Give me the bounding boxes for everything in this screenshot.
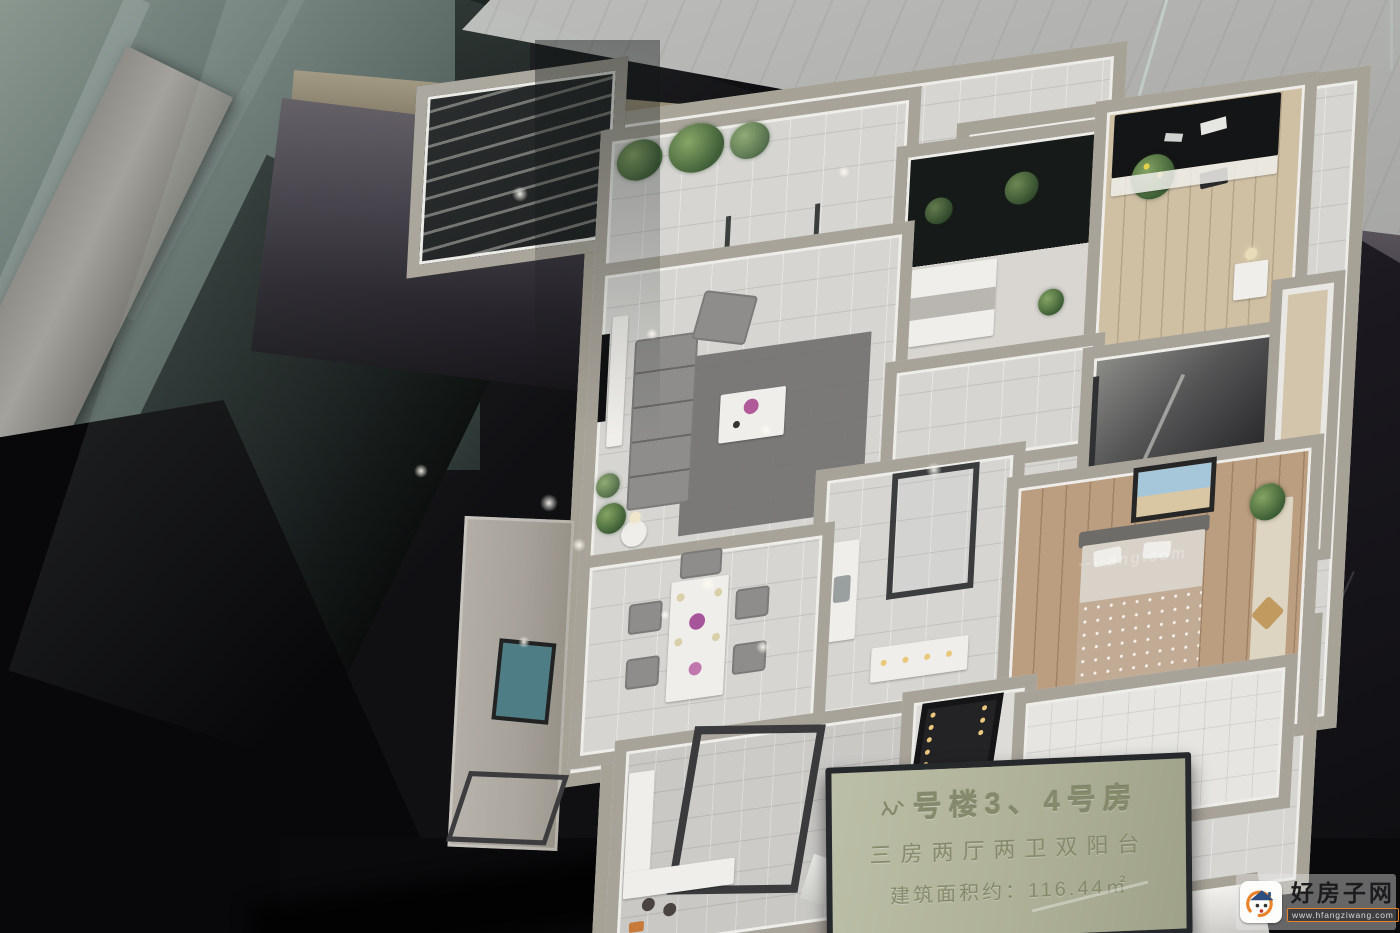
table-lamp — [1245, 247, 1258, 261]
cabinet-lights — [881, 659, 887, 666]
glass-case-edge — [1390, 0, 1393, 70]
light-flare — [926, 462, 942, 478]
mirror-led-dots — [930, 712, 936, 718]
light-flare — [540, 494, 558, 512]
desk-papers — [1164, 133, 1183, 142]
plaque-line-layout: 三房两厅两卫双阳台 — [832, 824, 1186, 871]
light-flare — [518, 636, 530, 648]
cooking-pots — [642, 897, 656, 912]
plant-pot — [1037, 287, 1064, 317]
nightstand — [1233, 259, 1269, 300]
light-flare — [760, 424, 772, 436]
bath-cabinet — [870, 635, 969, 683]
shower-glass-door — [886, 462, 980, 600]
scratched-character-mark — [878, 794, 912, 819]
light-flare — [572, 538, 586, 552]
reflection-shadow-band — [535, 40, 660, 480]
window-greenery — [1004, 169, 1039, 206]
site-watermark: 好房子网 www.hfangziwang.com — [1236, 874, 1396, 930]
model-info-plaque: 号楼3、4号房 三房两厅两卫双阳台 建筑面积约：116.44㎡ — [825, 752, 1192, 933]
light-flare — [700, 576, 716, 592]
watermark-site-name: 好房子网 — [1291, 882, 1395, 906]
light-flare — [838, 166, 850, 178]
watermark-text-block: 好房子网 www.hfangziwang.com — [1287, 882, 1399, 922]
plaque-line-area: 建筑面积约：116.44㎡ — [832, 867, 1186, 911]
light-flare — [512, 186, 528, 202]
orange-utensil — [629, 921, 644, 933]
light-flare — [756, 640, 770, 654]
light-flare — [646, 328, 658, 340]
side-cabinet — [1249, 496, 1294, 676]
photo-scene: ----ang.com 号楼3、4号房 三房两厅两卫双阳台 建筑面积约：116.… — [0, 0, 1400, 933]
watermark-site-url: www.hfangziwang.com — [1287, 908, 1399, 922]
light-flare — [414, 464, 428, 478]
light-flare — [660, 610, 670, 620]
wall-picture-beach — [1131, 457, 1217, 524]
house-logo-icon — [1240, 881, 1282, 923]
plaque-line-building: 号楼3、4号房 — [832, 772, 1186, 829]
